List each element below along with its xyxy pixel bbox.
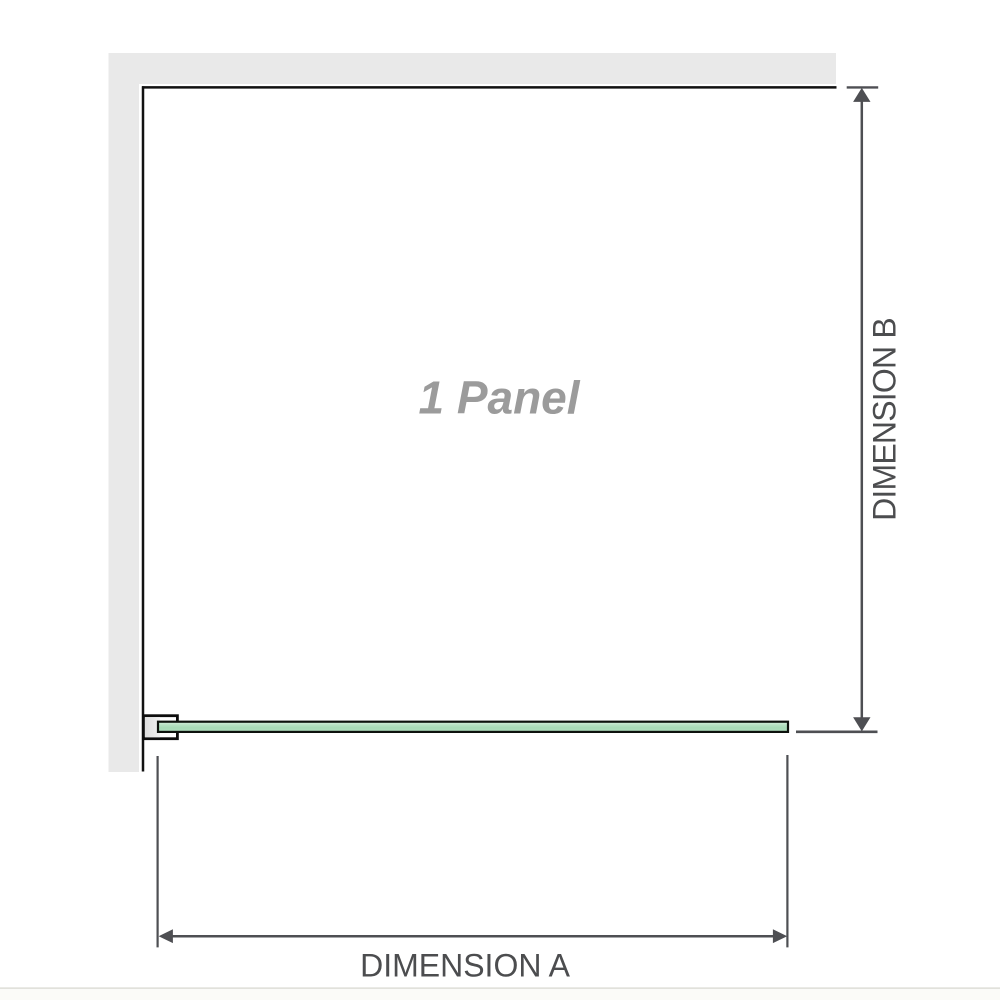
svg-text:1 Panel: 1 Panel <box>418 372 580 424</box>
svg-text:DIMENSION A: DIMENSION A <box>360 948 570 984</box>
svg-text:DIMENSION B: DIMENSION B <box>867 318 903 521</box>
